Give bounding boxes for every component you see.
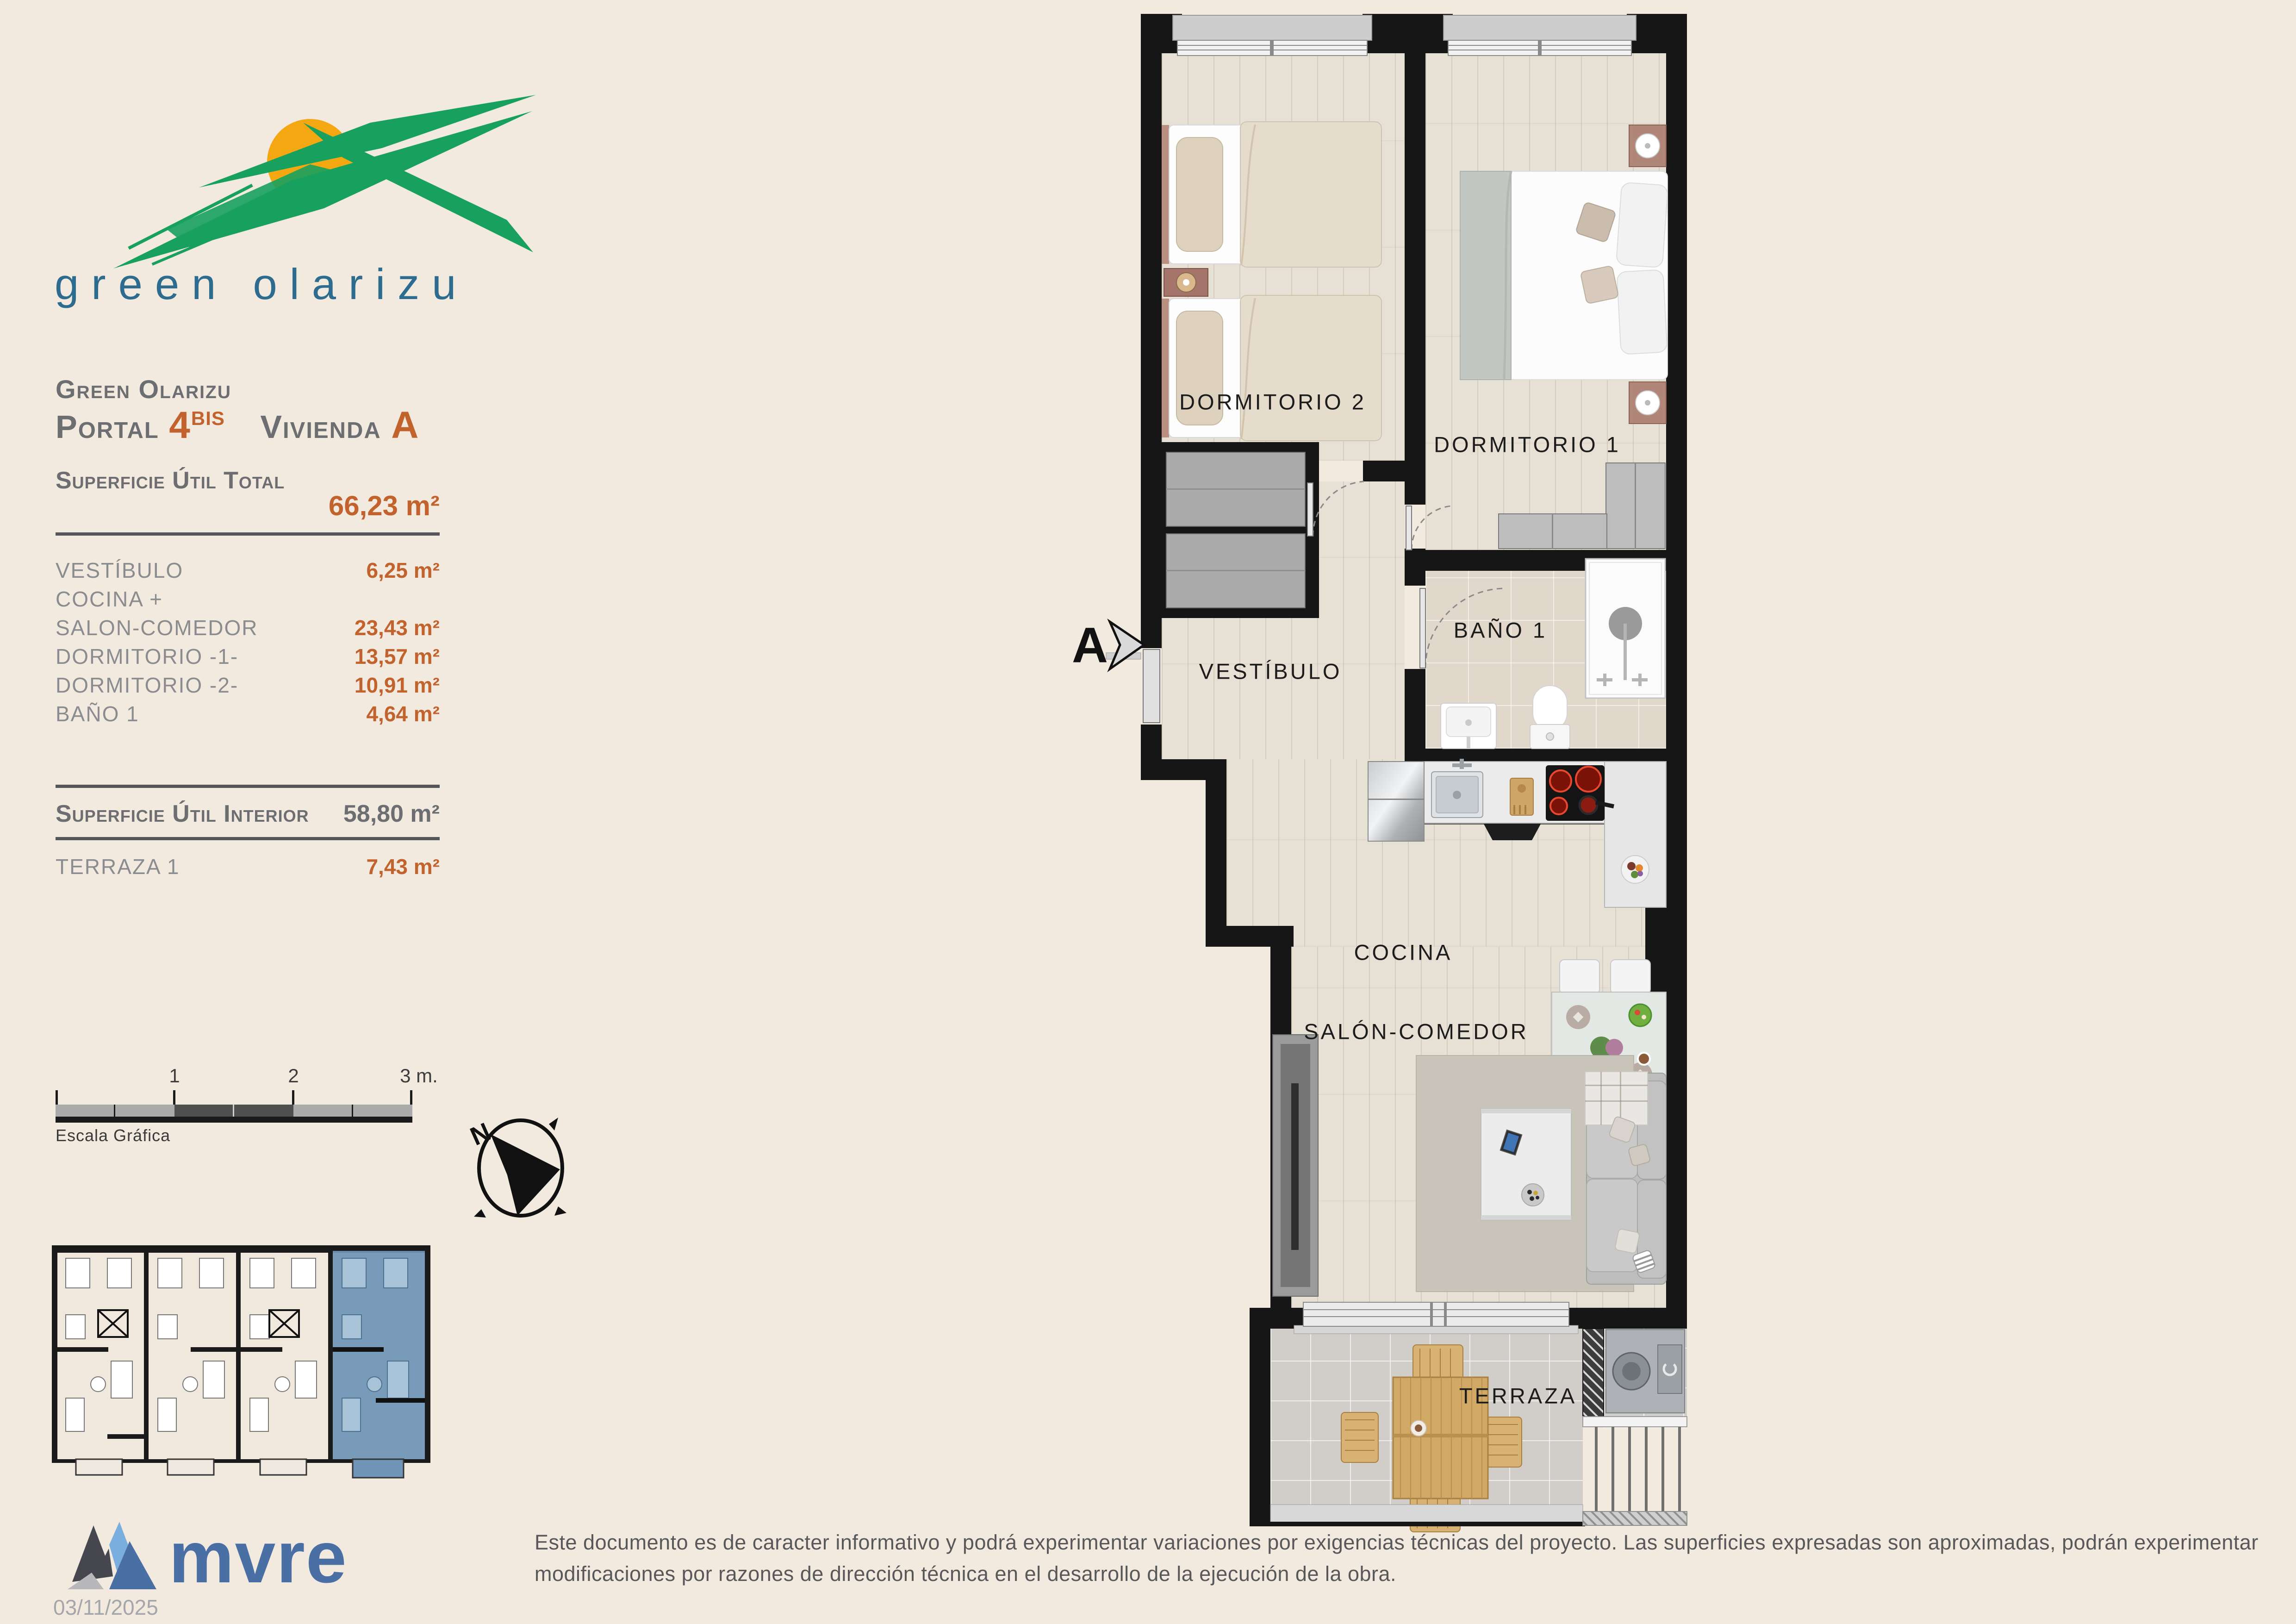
mvre-logo: mvre bbox=[65, 1521, 389, 1597]
terrace-divider-wall bbox=[1583, 1329, 1604, 1421]
sofa bbox=[1585, 1072, 1666, 1284]
label-terraza: TERRAZA bbox=[1459, 1383, 1577, 1409]
tv-unit bbox=[1273, 1035, 1318, 1296]
date: 03/11/2025 bbox=[53, 1595, 158, 1620]
scale-half-tick bbox=[352, 1105, 353, 1117]
salon-sliding-door bbox=[1294, 1302, 1578, 1334]
dorm1-double-bed bbox=[1460, 171, 1668, 380]
toilet bbox=[1530, 686, 1570, 749]
compass-north-label: N bbox=[466, 1117, 495, 1151]
room-row: DORMITORIO -1- 13,57 m² bbox=[56, 644, 440, 669]
dorm1-wardrobe bbox=[1499, 463, 1665, 549]
surface-total-value: 66,23 m² bbox=[56, 490, 440, 522]
dorm2-bed-single-1 bbox=[1162, 122, 1381, 267]
dorm1-nightstand bbox=[1629, 125, 1666, 167]
building-keyplan-thumbnail bbox=[52, 1245, 430, 1484]
label-bano1: BAÑO 1 bbox=[1454, 618, 1547, 643]
room-value: 10,91 m² bbox=[355, 673, 440, 698]
scale-tick-label: 1 bbox=[169, 1065, 180, 1087]
scale-half-tick bbox=[114, 1105, 115, 1117]
vivienda-letter: A bbox=[391, 404, 419, 446]
fridge-door-line bbox=[1368, 799, 1424, 800]
terrace-furniture bbox=[1341, 1345, 1522, 1532]
room-label: COCINA + bbox=[56, 587, 163, 612]
scale-half-tick bbox=[233, 1105, 234, 1117]
section-marker-label: A bbox=[1072, 616, 1108, 674]
dorm2-nightstand bbox=[1164, 269, 1208, 296]
dorm2-bed-single-2 bbox=[1162, 295, 1381, 441]
room-row: VESTÍBULO 6,25 m² bbox=[56, 558, 440, 583]
label-salon-comedor: SALÓN-COMEDOR bbox=[1304, 1019, 1528, 1044]
terrace-row: TERRAZA 1 7,43 m² bbox=[56, 854, 440, 879]
mvre-mountains-icon bbox=[68, 1522, 156, 1589]
portal-vivienda-title: Portal 4BIS Vivienda A bbox=[56, 404, 419, 447]
scale-tick-label: 3 m. bbox=[400, 1065, 438, 1087]
dorm1-nightstand bbox=[1629, 382, 1666, 424]
portal-number: 4 bbox=[169, 404, 191, 446]
window-dormitorio1 bbox=[1444, 15, 1636, 56]
room-value: 13,57 m² bbox=[355, 644, 440, 669]
window-dormitorio2 bbox=[1173, 15, 1372, 56]
scale-caption: Escala Gráfica bbox=[56, 1126, 170, 1145]
floor-plan: A DORMITORIO 2 DORMITORIO 1 VESTÍBULO BA… bbox=[1074, 12, 1703, 1553]
interior-surface-value: 58,80 m² bbox=[343, 800, 440, 828]
logo-wordmark: green olarizu bbox=[55, 259, 468, 309]
room-label: VESTÍBULO bbox=[56, 558, 183, 583]
section-arrow-icon bbox=[1110, 622, 1144, 669]
room-label: BAÑO 1 bbox=[56, 701, 139, 726]
interior-surface-row: Superficie Útil Interior 58,80 m² bbox=[56, 800, 440, 828]
logo-brush-strokes-icon bbox=[113, 95, 536, 269]
green-olarizu-logo bbox=[51, 76, 546, 271]
label-dormitorio1: DORMITORIO 1 bbox=[1434, 432, 1621, 457]
cooktop bbox=[1546, 765, 1614, 821]
scale-tick-label: 2 bbox=[288, 1065, 299, 1087]
fruit-plate bbox=[1621, 856, 1649, 883]
terrace-value: 7,43 m² bbox=[366, 854, 440, 879]
vivienda-label: Vivienda bbox=[260, 409, 381, 445]
room-label: SALON-COMEDOR bbox=[56, 615, 258, 640]
room-row: DORMITORIO -2- 10,91 m² bbox=[56, 673, 440, 698]
compass-icon: N bbox=[463, 1106, 576, 1226]
room-row: SALON-COMEDOR 23,43 m² bbox=[56, 615, 440, 640]
divider-rule bbox=[56, 837, 440, 840]
interior-surface-label: Superficie Útil Interior bbox=[56, 800, 309, 828]
room-value: 23,43 m² bbox=[355, 615, 440, 640]
portal-suffix: BIS bbox=[191, 407, 225, 429]
fridge bbox=[1368, 762, 1424, 841]
washing-machine bbox=[1606, 1330, 1685, 1413]
terrace-railing bbox=[1583, 1417, 1687, 1525]
coffee-table bbox=[1481, 1109, 1571, 1220]
label-dormitorio2: DORMITORIO 2 bbox=[1179, 389, 1366, 415]
plan-sheet: green olarizu Green Olarizu Portal 4BIS … bbox=[0, 0, 2296, 1624]
divider-rule bbox=[56, 785, 440, 788]
room-row: BAÑO 1 4,64 m² bbox=[56, 701, 440, 726]
room-row: COCINA + bbox=[56, 587, 440, 612]
divider-rule bbox=[56, 532, 440, 536]
shower bbox=[1586, 559, 1665, 698]
room-label: DORMITORIO -2- bbox=[56, 673, 238, 698]
keyplan-highlighted-unit bbox=[333, 1251, 425, 1478]
room-value: 4,64 m² bbox=[366, 701, 440, 726]
portal-label: Portal bbox=[56, 409, 159, 445]
plan-drawing bbox=[1074, 12, 1703, 1553]
cutting-board bbox=[1510, 778, 1533, 815]
scale-baseline bbox=[56, 1117, 412, 1123]
bathroom-sink bbox=[1441, 703, 1496, 749]
terrace-label: TERRAZA 1 bbox=[56, 854, 180, 879]
room-value: 6,25 m² bbox=[366, 558, 440, 583]
label-vestibulo: VESTÍBULO bbox=[1199, 659, 1342, 684]
label-cocina: COCINA bbox=[1354, 940, 1453, 965]
room-label: DORMITORIO -1- bbox=[56, 644, 238, 669]
project-name: Green Olarizu bbox=[56, 374, 231, 404]
mvre-wordmark: mvre bbox=[169, 1521, 348, 1597]
terrace-parapet bbox=[1268, 1505, 1585, 1526]
